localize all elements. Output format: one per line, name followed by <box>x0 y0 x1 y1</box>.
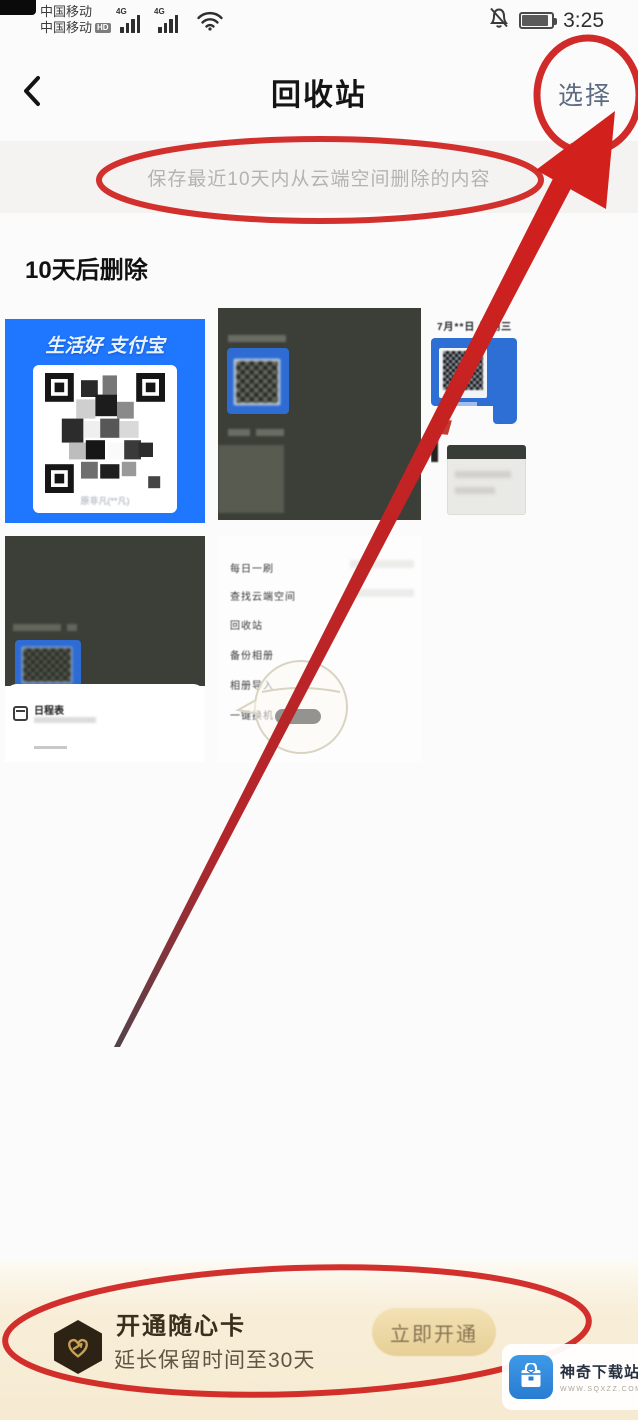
deleted-item-schedule-screenshot[interactable]: 日程表 <box>5 536 205 762</box>
qr-code-card: 原非凡(**凡) <box>33 365 177 513</box>
battery-icon <box>519 12 554 29</box>
menu-item: 每日一刷 <box>230 560 274 575</box>
vip-card-badge-icon <box>54 1320 102 1374</box>
deleted-item-alipay-qr[interactable]: 生活好 支付宝 原非凡(**凡) <box>5 319 205 523</box>
screen-corner-mark <box>0 0 36 15</box>
carrier-name-sim1: 中国移动 <box>40 4 92 20</box>
signal-strength-icon-sim1: 4G <box>118 7 144 35</box>
status-time: 3:25 <box>563 9 604 33</box>
alipay-brand-text: 生活好 支付宝 <box>5 331 205 358</box>
deleted-item-settings-screenshot[interactable]: 每日一刷 查找云端空间 回收站 备份相册 相册导入 一键换机 <box>218 536 421 762</box>
menu-item: 查找云端空间 <box>230 588 296 603</box>
recycle-bin-screen: 中国移动 中国移动 HD 4G 4G <box>0 0 638 1420</box>
menu-item: 相册导入 <box>230 677 274 692</box>
red-flag-graphic <box>433 420 452 435</box>
section-heading: 10天后删除 <box>25 250 148 285</box>
promo-subtitle: 延长保留时间至30天 <box>114 1344 315 1374</box>
menu-item: 一键换机 <box>230 707 274 722</box>
carrier-info: 中国移动 中国移动 HD <box>40 4 111 36</box>
wifi-icon <box>196 10 224 37</box>
page-title: 回收站 <box>0 70 638 114</box>
signal-strength-icon-sim2: 4G <box>156 7 182 35</box>
activate-now-button[interactable]: 立即开通 <box>372 1308 496 1356</box>
watermark-site-name: 神奇下载站 <box>560 1361 638 1382</box>
nav-bar: 回收站 选择 <box>0 56 638 130</box>
deleted-item-date-screenshot[interactable]: 7月**日 星期三 <box>431 312 635 524</box>
deleted-item-dark-screenshot[interactable] <box>218 308 421 520</box>
mini-qr-card <box>227 348 289 414</box>
status-bar: 中国移动 中国移动 HD 4G 4G <box>0 0 638 48</box>
calendar-icon <box>13 706 28 721</box>
menu-item: 回收站 <box>230 617 263 632</box>
screenshot-date-text: 7月**日 星期三 <box>437 318 512 333</box>
retention-notice-banner: 保存最近10天内从云端空间删除的内容 <box>0 141 638 213</box>
watermark-card: 神奇下载站 WWW.SQXZZ.COM <box>502 1344 638 1410</box>
select-button[interactable]: 选择 <box>558 76 612 112</box>
receipt-card <box>447 445 526 515</box>
retention-notice-text: 保存最近10天内从云端空间删除的内容 <box>147 164 490 191</box>
menu-item: 备份相册 <box>230 647 274 662</box>
carrier-name-sim2: 中国移动 <box>40 20 92 36</box>
dark-pill-button <box>275 709 321 724</box>
sheet-title: 日程表 <box>34 702 64 717</box>
qr-owner-caption: 原非凡(**凡) <box>33 494 177 507</box>
home-indicator <box>34 746 67 749</box>
bottom-sheet: 日程表 <box>5 684 205 762</box>
hd-volte-badge: HD <box>95 23 111 33</box>
notifications-muted-icon <box>488 6 510 35</box>
promo-title: 开通随心卡 <box>116 1306 246 1341</box>
download-site-logo-icon <box>509 1355 553 1399</box>
qr-code-pixelated <box>45 373 165 493</box>
watermark-site-url: WWW.SQXZZ.COM <box>560 1386 638 1393</box>
